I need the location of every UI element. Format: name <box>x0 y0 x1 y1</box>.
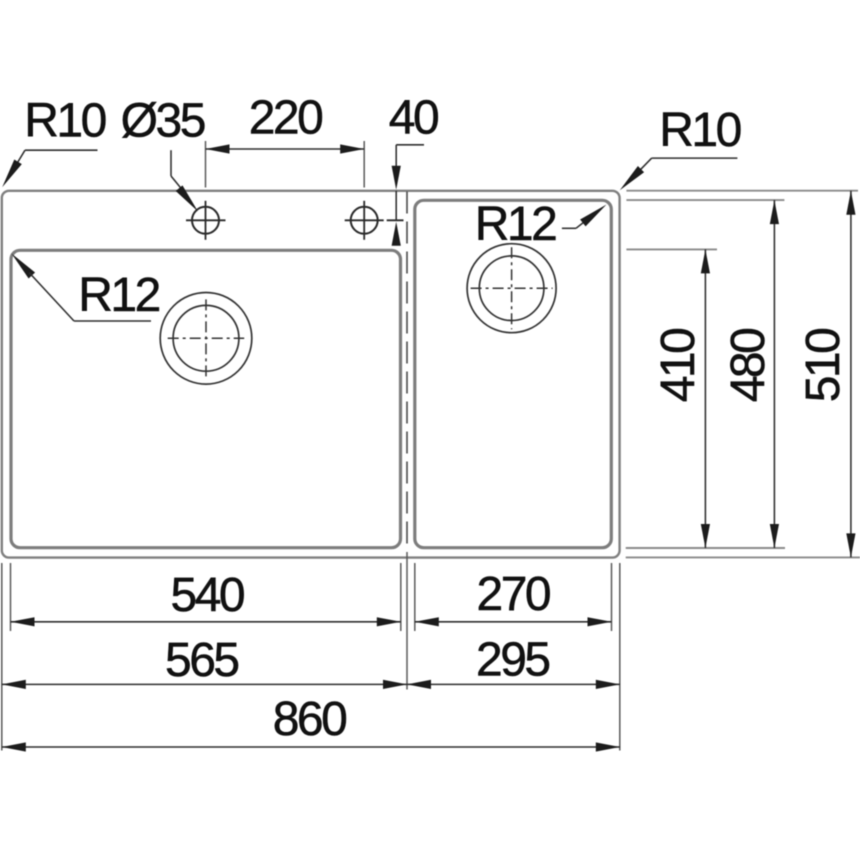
svg-text:295: 295 <box>476 634 549 687</box>
svg-text:R12: R12 <box>475 198 556 251</box>
svg-text:Ø35: Ø35 <box>121 95 205 148</box>
svg-text:40: 40 <box>389 92 438 145</box>
svg-text:R10: R10 <box>659 104 740 157</box>
svg-text:480: 480 <box>722 329 775 402</box>
svg-text:410: 410 <box>652 329 705 402</box>
svg-text:540: 540 <box>171 569 244 622</box>
svg-text:270: 270 <box>477 568 550 621</box>
svg-text:R10: R10 <box>24 95 105 148</box>
svg-text:565: 565 <box>165 634 238 687</box>
svg-text:860: 860 <box>273 693 346 746</box>
svg-text:510: 510 <box>797 329 850 402</box>
svg-text:220: 220 <box>249 92 322 145</box>
svg-text:R12: R12 <box>78 269 159 322</box>
